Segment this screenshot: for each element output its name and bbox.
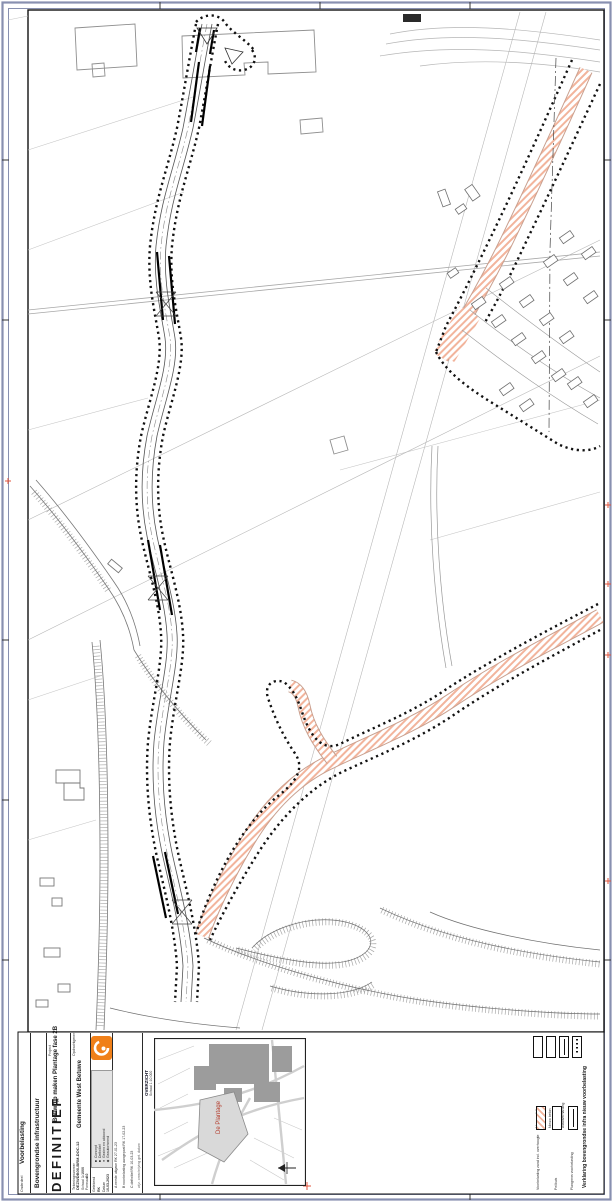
revision-row: B voorbelasting aangepast RK 17-02-23 <box>122 1036 126 1188</box>
site-plan-map <box>0 0 613 1202</box>
getekend-label: Getekend <box>92 1170 96 1192</box>
titleblock-divider <box>30 1033 31 1193</box>
legend-swatch-zakbaken <box>572 1036 582 1058</box>
autorisatie-panel: ■ Concept ■ Definitief ● Gezien en akkoo… <box>91 1070 113 1168</box>
revision-row: C definitief RK 10-03-23 <box>130 1036 134 1188</box>
autorisatie-row: ◆ Geautoriseerd <box>106 1075 110 1163</box>
legend-label: Plangrens voorbelasting <box>570 1134 574 1190</box>
opdrachtgever-label: Opdrachtgever <box>72 1036 76 1056</box>
revision-row: A eerste uitgave RK 27-01-23 <box>114 1036 118 1188</box>
inset-scale: Schaal 1:10.000 <box>149 1036 153 1096</box>
titleblock-divider <box>70 1033 71 1193</box>
titleblock-divider <box>46 1033 47 1193</box>
inset-overview-map: De Plantage <box>154 1038 306 1186</box>
titleblock-divider <box>142 1033 143 1193</box>
company-logo-icon <box>91 1034 113 1064</box>
project-label: Project <box>48 1036 52 1056</box>
status-definitief: DEFINITIEF <box>50 1126 65 1192</box>
revision-header: wijz. omschrijving get. datum <box>137 1036 141 1188</box>
map-frame <box>28 10 604 1032</box>
onderdeel-label: Onderdeel <box>20 1168 24 1192</box>
formaat-value: A0 <box>85 1158 89 1178</box>
drawing-sheet: Onderdeel Voorbelasting Bovengrondse inf… <box>0 0 613 1202</box>
legend-swatch-asfalt <box>533 1036 543 1058</box>
legend-title: Verklaring bovengrondse infra nieuw voor… <box>583 1036 589 1188</box>
getekend-value: RK <box>97 1170 101 1192</box>
legend-swatch-voorbelasting <box>536 1106 546 1130</box>
label-box <box>403 14 421 22</box>
legend-label: Voorbelasting zand incl. overhoogte <box>536 1134 540 1190</box>
datum-value: 10-03-2023 <box>106 1170 110 1192</box>
legend-label: Peilbuis <box>554 1134 558 1190</box>
opdrachtgever: Gemeente West Betuwe <box>77 1036 84 1128</box>
legend-swatch-verharding <box>559 1036 569 1058</box>
legend-swatch-beton <box>546 1036 556 1058</box>
legend-swatch-plangrens <box>568 1106 578 1130</box>
inset-area-label: De Plantage <box>216 1100 222 1134</box>
legend-swatch-peilbuis <box>552 1106 562 1130</box>
onderdeel-line2: Voorbelasting <box>19 1036 26 1164</box>
onderdeel-line1: Bovengrondse infrastructuur <box>34 1036 41 1188</box>
tekeningnummer: DEZWDB00-BRM-DOC-12 <box>76 1132 81 1190</box>
